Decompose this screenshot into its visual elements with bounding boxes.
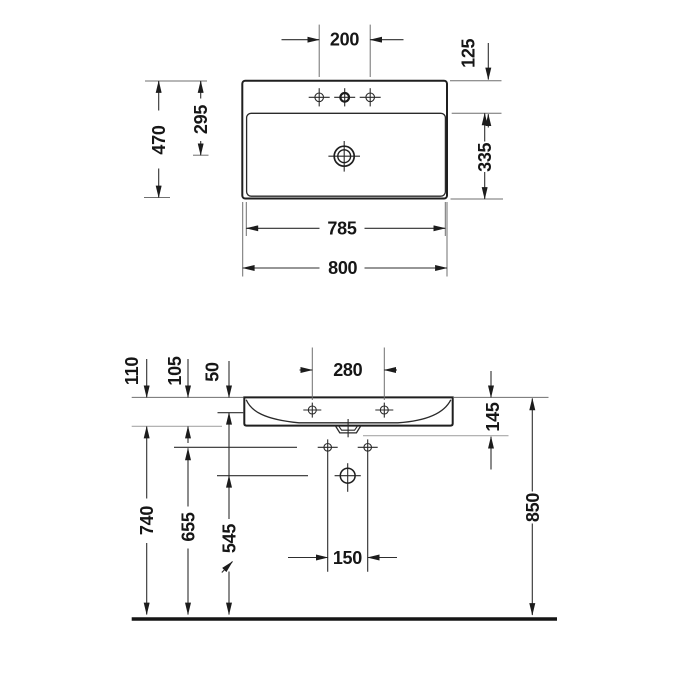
dim-overall-depth: 470 xyxy=(149,81,169,198)
dim-label-200: 200 xyxy=(330,30,359,50)
dim-label-785: 785 xyxy=(327,219,356,239)
drain-plan xyxy=(328,141,360,172)
dim-bowl-depth: 335 xyxy=(475,113,495,199)
dim-tap-axis-and-drain-height: 50 545 xyxy=(203,361,240,615)
dim-fixing-hole-spacing: 150 xyxy=(288,548,397,568)
tap-hole-center xyxy=(334,88,355,106)
dim-drain-from-back: 295 xyxy=(191,81,211,155)
dim-rim-height: 850 xyxy=(523,398,543,615)
dim-label-470: 470 xyxy=(149,125,169,154)
dim-tap-spacing-front: 280 xyxy=(300,348,398,401)
plan-view: 200 125 470 295 xyxy=(144,25,503,279)
dim-label-125: 125 xyxy=(459,38,479,67)
dim-label-545: 545 xyxy=(220,524,240,553)
dim-label-655: 655 xyxy=(179,512,199,541)
tap-hole-right xyxy=(360,88,381,106)
dim-label-50: 50 xyxy=(203,362,223,382)
dim-tap-spacing-plan: 200 xyxy=(282,25,404,77)
dim-label-335: 335 xyxy=(475,142,495,171)
dim-label-110: 110 xyxy=(122,357,142,385)
dim-bowl-width: 785 xyxy=(246,219,445,239)
drawing-canvas: 200 125 470 295 xyxy=(0,0,700,700)
dim-label-740: 740 xyxy=(137,506,157,535)
dim-label-295: 295 xyxy=(191,105,211,134)
dim-front-height-and-underside: 110 740 xyxy=(122,357,157,615)
front-view: 110 740 105 655 50 545 28 xyxy=(122,348,557,620)
dim-label-145: 145 xyxy=(483,402,503,431)
drain-pipe-front xyxy=(335,463,361,492)
basin-bowl-plan xyxy=(247,113,446,196)
dim-label-850: 850 xyxy=(523,493,543,522)
dim-label-105: 105 xyxy=(165,356,185,385)
dim-bowl-inner-height-and-fixing: 105 655 xyxy=(165,356,199,614)
dim-label-150: 150 xyxy=(333,548,362,568)
dim-label-800: 800 xyxy=(328,258,357,278)
dim-label-280: 280 xyxy=(333,360,362,380)
dim-overall-width: 800 xyxy=(243,258,447,278)
dim-edge-height: 145 xyxy=(483,371,503,470)
washbasin-technical-drawing: 200 125 470 295 xyxy=(0,0,700,700)
northeast-arrow-icon xyxy=(222,562,233,573)
dim-tap-edge-offset: 125 xyxy=(459,38,489,127)
tap-hole-left xyxy=(309,88,330,106)
